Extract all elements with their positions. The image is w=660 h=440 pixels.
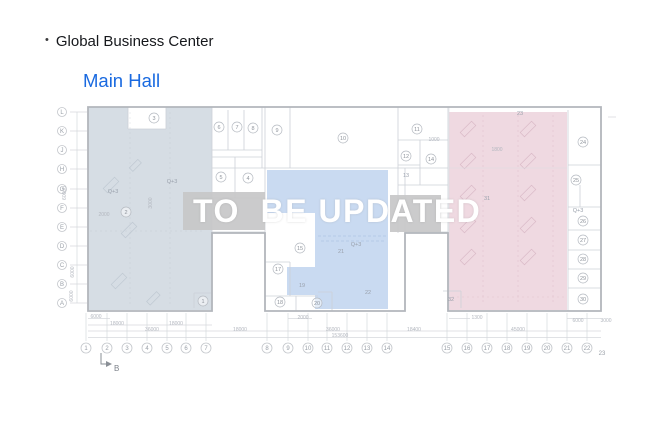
svg-text:2: 2 [124,210,127,216]
grid-number-2: 2 [102,313,112,353]
dimension-label: 3000 [148,197,154,208]
svg-text:10: 10 [305,346,312,352]
svg-text:15: 15 [297,246,303,252]
grid-number-3: 3 [122,313,132,353]
svg-text:21: 21 [338,249,344,255]
svg-text:18000: 18000 [110,321,124,327]
svg-text:24: 24 [580,140,586,146]
svg-text:29: 29 [580,276,586,282]
svg-text:6000: 6000 [572,318,583,324]
dimension-label: 18000 [233,327,247,333]
grid-letter-B: B [58,280,88,289]
svg-text:1: 1 [201,299,204,305]
svg-text:17: 17 [484,346,491,352]
svg-text:22: 22 [365,290,371,296]
svg-text:6000: 6000 [69,290,75,301]
dimension-label: 1000 [428,137,439,143]
svg-text:45000: 45000 [511,327,525,333]
svg-text:1000: 1000 [428,137,439,143]
svg-text:B: B [60,282,64,288]
svg-text:1300: 1300 [471,315,482,321]
room-number-29: 29 [578,273,588,283]
plan-label-32: 32 [448,297,454,303]
svg-text:8: 8 [251,126,254,132]
room-number-24: 24 [578,137,588,147]
svg-text:A: A [60,301,64,307]
svg-text:E: E [60,225,64,231]
svg-text:1800: 1800 [491,147,502,153]
grid-letter-K: K [58,127,88,136]
dimension-label: 6000 [90,314,101,320]
grid-number-9: 9 [283,313,293,353]
grid-letter-F: F [58,204,88,213]
svg-text:153600: 153600 [332,333,349,339]
grid-number-17: 17 [482,313,492,353]
room-number-9: 9 [272,125,282,135]
plan-label-21: 21 [338,249,344,255]
plan-label-31: 31 [484,196,490,202]
grid-number-21: 21 [562,313,572,353]
grid-number-13: 13 [362,313,372,353]
slide: • Global Business Center Main Hall [0,0,660,440]
svg-text:H: H [60,167,64,173]
to-be-updated-overlay: TO BE UPDATED [193,193,481,230]
dimension-label: 6000 [69,290,75,301]
svg-text:32: 32 [448,297,454,303]
grid-number-20: 20 [542,313,552,353]
svg-text:18: 18 [277,300,283,306]
grid-letter-L: L [58,108,88,117]
room-number-12: 12 [401,151,411,161]
plan-label-Q+3: Q+3 [573,208,584,214]
plan-label-Q+3: Q+3 [108,189,119,195]
room-number-11: 11 [412,124,422,134]
dimension-label: 18000 [110,321,124,327]
svg-text:22: 22 [584,346,591,352]
section-marker-label: B [114,364,119,373]
grid-number-15: 15 [442,313,452,353]
svg-text:19: 19 [524,346,531,352]
svg-text:25: 25 [573,178,579,184]
svg-text:10: 10 [340,136,346,142]
plan-label-22: 22 [365,290,371,296]
svg-text:14: 14 [384,346,391,352]
svg-text:J: J [61,148,64,154]
svg-text:3000: 3000 [148,197,154,208]
dimension-label: 2000 [297,315,308,321]
dimension-label: 6000 [70,266,76,277]
svg-text:18000: 18000 [169,321,183,327]
grid-number-19: 19 [522,313,532,353]
grid-number-23: 23 [599,351,606,357]
svg-text:12: 12 [344,346,351,352]
room-number-26: 26 [578,216,588,226]
room-number-5: 5 [216,172,226,182]
room-number-2: 2 [121,207,131,217]
svg-text:28: 28 [580,257,586,263]
room-number-7: 7 [232,122,242,132]
dimension-label: 153600 [332,333,349,339]
svg-text:17: 17 [275,267,281,273]
grid-letter-E: E [58,223,88,232]
svg-text:5: 5 [219,175,222,181]
svg-text:31: 31 [484,196,490,202]
svg-text:3: 3 [152,116,155,122]
grid-number-18: 18 [502,313,512,353]
room-number-28: 28 [578,254,588,264]
grid-letter-D: D [58,242,88,251]
dimension-label: 45000 [511,327,525,333]
room-number-8: 8 [248,123,258,133]
svg-text:27: 27 [580,238,586,244]
svg-text:18000: 18000 [233,327,247,333]
room-number-10: 10 [338,133,348,143]
grid-number-14: 14 [382,313,392,353]
svg-text:60000: 60000 [62,186,68,200]
dimension-label: 2000 [98,212,109,218]
svg-text:14: 14 [428,157,434,163]
plan-label-23: 23 [517,111,523,117]
section-marker-b: B [101,353,119,373]
middle-highlight-region [267,170,388,309]
svg-text:Q+3: Q+3 [108,189,119,195]
dimension-label: 18000 [169,321,183,327]
dimension-label: 3000 [600,318,611,324]
room-number-15: 15 [295,243,305,253]
svg-text:23: 23 [517,111,523,117]
svg-text:13: 13 [364,346,371,352]
svg-text:12: 12 [403,154,409,160]
svg-text:13: 13 [403,173,409,179]
grid-number-7: 7 [201,313,211,353]
room-number-25: 25 [571,175,581,185]
room-number-4: 4 [243,173,253,183]
grid-number-5: 5 [162,313,172,353]
svg-text:2000: 2000 [297,315,308,321]
dimension-label: 1800 [491,147,502,153]
dimension-label: 1300 [471,315,482,321]
room-number-17: 17 [273,264,283,274]
dimension-label: 36000 [145,327,159,333]
room-number-30: 30 [578,294,588,304]
svg-text:D: D [60,244,65,250]
svg-text:K: K [60,129,64,135]
svg-text:20: 20 [314,301,320,307]
svg-text:11: 11 [414,127,420,133]
svg-text:6000: 6000 [90,314,101,320]
svg-text:2000: 2000 [98,212,109,218]
plan-label-19: 19 [299,283,305,289]
svg-text:15: 15 [444,346,451,352]
room3-notch [128,107,166,129]
svg-text:20: 20 [544,346,551,352]
svg-text:26: 26 [580,219,586,225]
svg-text:11: 11 [324,346,331,352]
plan-label-13: 13 [403,173,409,179]
svg-text:16: 16 [464,346,471,352]
room-number-3: 3 [149,113,159,123]
dimension-label: 18400 [407,327,421,333]
svg-text:21: 21 [564,346,571,352]
plan-label-Q+3: Q+3 [167,179,178,185]
grid-letter-H: H [58,165,88,174]
svg-text:6: 6 [217,125,220,131]
plan-label-Q+3: Q+3 [351,242,362,248]
svg-text:Q+3: Q+3 [167,179,178,185]
grid-letter-J: J [58,146,88,155]
svg-text:C: C [60,263,65,269]
svg-text:30: 30 [580,297,586,303]
svg-text:19: 19 [299,283,305,289]
room-number-1: 1 [198,296,208,306]
svg-text:Q+3: Q+3 [573,208,584,214]
grid-number-4: 4 [142,313,152,353]
grid-number-11: 11 [322,313,332,353]
room-number-27: 27 [578,235,588,245]
svg-text:36000: 36000 [145,327,159,333]
grid-number-8: 8 [262,313,272,353]
svg-text:18400: 18400 [407,327,421,333]
svg-text:6000: 6000 [70,266,76,277]
svg-text:3000: 3000 [600,318,611,324]
room-number-20: 20 [312,298,322,308]
dimension-label: 60000 [62,186,68,200]
room-number-6: 6 [214,122,224,132]
svg-text:4: 4 [246,176,249,182]
svg-text:9: 9 [275,128,278,134]
room-number-14: 14 [426,154,436,164]
dimension-label: 6000 [572,318,583,324]
grid-number-6: 6 [181,313,191,353]
svg-text:7: 7 [235,125,238,131]
svg-text:23: 23 [599,351,606,357]
svg-text:F: F [60,206,64,212]
svg-text:18: 18 [504,346,511,352]
room-number-18: 18 [275,297,285,307]
svg-text:Q+3: Q+3 [351,242,362,248]
